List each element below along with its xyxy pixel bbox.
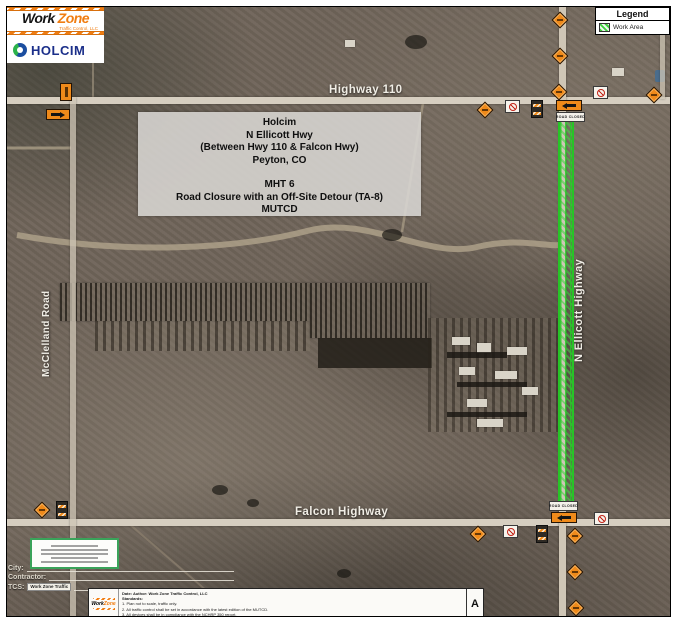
building [447,352,507,358]
no-thru-icon [509,103,517,111]
warning-diamond-sign [568,600,584,616]
info-line-client: Holcim [138,117,421,130]
tcs-value: Work Zone Traffic [27,583,71,591]
barricade-icon [536,525,548,543]
note-3: 3. All devices shall be in compliance wi… [122,612,463,617]
work-area-highlight [558,115,574,506]
building [477,419,503,427]
city-label: City: [8,565,24,572]
building [459,367,475,375]
building [447,412,527,417]
notes-box: WorkZone Date: Author: Work Zone Traffic… [88,588,484,617]
warning-diamond-sign [477,102,493,118]
mini-logo-word2: Zone [104,601,116,607]
shrub-cluster [212,485,228,495]
building [612,68,624,76]
no-thru-icon [507,528,515,536]
info-line-mutcd: MUTCD [138,204,421,217]
building [495,371,517,379]
building [345,40,355,47]
no-thru-icon [598,515,606,523]
workzone-mini-logo: WorkZone [89,589,119,617]
holcim-mark-icon [13,43,27,57]
detour-arrow-sign-left [551,512,577,523]
tcs-label: TCS: [8,584,24,591]
aerial-map: Highway 110 Falcon Highway N Ellicott Hi… [6,6,671,617]
workzone-logo-word2: Zone [58,11,89,26]
work-area-swatch-icon [599,23,610,32]
label-mcclelland-road: McClelland Road [41,247,52,377]
no-thru-icon [597,89,605,97]
info-line-between: (Between Hwy 110 & Falcon Hwy) [138,142,421,155]
warning-diamond-sign [552,12,568,28]
legend-item-label: Work Area [613,24,643,31]
detour-arrow-sign-right [46,109,70,120]
road-closed-sign: ROAD CLOSED [556,112,585,122]
contractor-label: Contractor: [8,574,46,581]
regulatory-sign [593,86,608,99]
road-closed-sign: ROAD CLOSED [549,501,578,511]
building [507,347,527,355]
workzone-logo-word1: Work [22,11,55,26]
field-area [318,338,432,368]
warning-diamond-sign [552,48,568,64]
info-line-mht: MHT 6 [138,179,421,192]
warning-diamond-sign [470,526,486,542]
barricade-icon [531,100,543,118]
building [457,382,527,387]
plan-sheet: Highway 110 Falcon Highway N Ellicott Hi… [0,0,673,619]
barricade-icon [56,501,68,519]
info-line-road: N Ellicott Hwy [138,130,421,143]
hazard-stripe-icon [93,608,115,610]
hazard-stripe-icon [93,598,115,600]
arrow-right-icon [60,112,65,118]
field-area [95,321,310,351]
building [522,387,538,395]
label-falcon-highway: Falcon Highway [295,506,388,518]
warning-diamond-sign [646,87,662,103]
building [467,399,487,407]
regulatory-sign [505,100,520,113]
city-row: City: [8,565,234,572]
legend-title: Legend [596,8,669,21]
regulatory-sign [503,525,518,538]
field-area [60,283,310,321]
pond [382,229,402,241]
project-info-box: Holcim N Ellicott Hwy (Between Hwy 110 &… [138,112,421,216]
warning-diamond-sign [551,84,567,100]
holcim-logo-label: HOLCIM [31,43,85,58]
building [452,337,470,345]
shrub-cluster [337,569,351,578]
detour-arrow-sign-left [556,100,582,111]
legend: Legend Work Area [595,7,670,35]
legend-item-work-area: Work Area [596,21,669,34]
label-highway-110: Highway 110 [329,84,402,96]
workzone-logo: Work Zone Traffic Control, LLC [7,7,104,37]
shrub-cluster [405,35,427,49]
hazard-stripe-icon [7,31,104,35]
warning-diamond-sign [567,528,583,544]
regulatory-sign [594,512,609,525]
info-line-city: Peyton, CO [138,155,421,168]
holcim-logo: HOLCIM [7,37,104,63]
mini-logo-word1: Work [91,601,103,607]
warning-diamond-sign [34,502,50,518]
label-n-ellicott-highway: N Ellicott Highway [573,212,585,362]
info-line-closure: Road Closure with an Off-Site Detour (TA… [138,192,421,205]
vertical-panel-sign [60,83,72,101]
warning-diamond-sign [567,564,583,580]
contractor-row: Contractor: [8,574,234,581]
shrub-cluster [247,499,259,507]
field-area [310,283,430,338]
revision-letter: A [466,589,483,617]
